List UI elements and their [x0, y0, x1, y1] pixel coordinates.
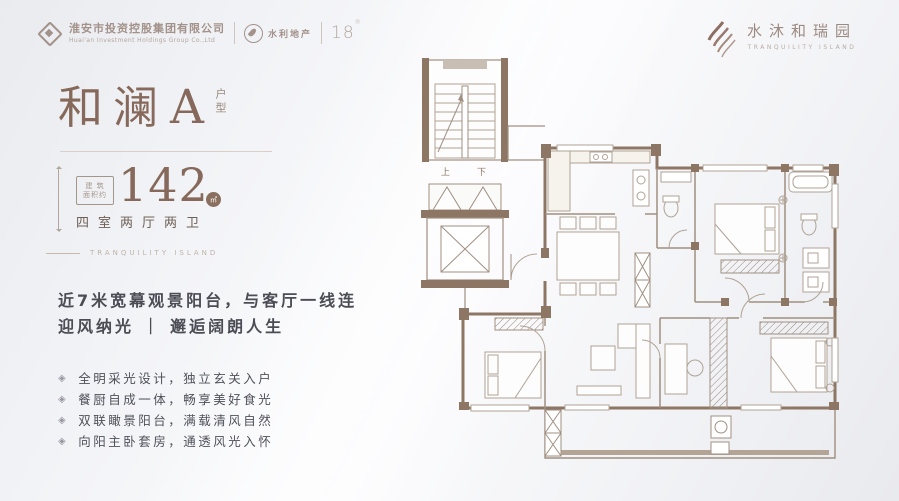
- brand-name: 水沐和瑞园: [747, 20, 857, 41]
- bathroom-1: [661, 172, 691, 248]
- study: [642, 340, 703, 394]
- balcony: [545, 405, 835, 458]
- dining-area: [557, 217, 619, 295]
- balcony-column: [545, 410, 561, 456]
- partner-logo: 水利地产: [244, 24, 312, 43]
- area-prefix-box: 建 筑 面积约: [76, 176, 114, 205]
- feature-item: ◈双联瞰景阳台，满载清风自然: [58, 410, 273, 431]
- anniversary-mark: 18®: [331, 23, 362, 43]
- master-bedroom: [741, 294, 834, 392]
- diamond-bullet-icon: ◈: [58, 389, 68, 410]
- partner-name: 水利地产: [268, 27, 312, 40]
- staircase: 上 下: [422, 58, 508, 178]
- kitchen: [548, 151, 650, 211]
- brand-name-en: TRANQUILITY ISLAND: [747, 44, 857, 51]
- diamond-bullet-icon: ◈: [58, 431, 68, 452]
- tagline-line-2: 迎风纳光 ｜ 邂逅阔朗人生: [58, 314, 357, 340]
- entry-door: [511, 254, 537, 280]
- header-divider: [234, 22, 235, 44]
- brand-wave-icon: [703, 20, 737, 60]
- header-logos: 淮安市投资控股集团有限公司 Huai'an Investment Holding…: [38, 22, 362, 44]
- bathroom-2: [789, 172, 832, 302]
- partner-logo-icon: [244, 24, 263, 43]
- unit-title: 和澜 A 户型: [58, 80, 228, 136]
- header-divider-2: [321, 22, 322, 44]
- brand-block: 水沐和瑞园 TRANQUILITY ISLAND: [703, 20, 857, 60]
- diamond-bullet-icon: ◈: [58, 410, 68, 431]
- tagline-line-1: 近7米宽幕观景阳台，与客厅一线连: [58, 288, 357, 314]
- area-unit-badge: ㎡: [206, 192, 221, 207]
- dimension-line: [58, 168, 59, 230]
- stair-down-label: 下: [477, 168, 486, 178]
- feature-item: ◈餐厨自成一体，畅享美好食光: [58, 389, 273, 410]
- unit-variant: A: [170, 80, 204, 136]
- tagline: 近7米宽幕观景阳台，与客厅一线连 迎风纳光 ｜ 邂逅阔朗人生: [58, 288, 357, 340]
- feature-item: ◈向阳主卧套房，通透风光入怀: [58, 431, 273, 452]
- caption-text: TRANQUILITY ISLAND: [90, 249, 218, 257]
- company-logo-icon: [38, 22, 60, 44]
- company-name: 淮安市投资控股集团有限公司: [69, 23, 225, 35]
- diamond-bullet-icon: ◈: [58, 368, 68, 389]
- area-value: 142: [118, 158, 209, 212]
- living-room: [577, 324, 650, 398]
- elevator: [421, 184, 509, 316]
- washer: [711, 416, 731, 454]
- structural-columns: [635, 253, 650, 307]
- lobby-corridor: [508, 126, 545, 160]
- feature-item: ◈全明采光设计，独立玄关入户: [58, 368, 273, 389]
- feature-list: ◈全明采光设计，独立玄关入户 ◈餐厨自成一体，畅享美好食光 ◈双联瞰景阳台，满载…: [58, 368, 273, 452]
- bedroom-bottom-left: [485, 326, 545, 398]
- caption-dash: [46, 253, 80, 254]
- room-configuration: 四室两厅两卫: [76, 212, 208, 231]
- unit-title-cn: 和澜: [58, 80, 168, 136]
- unit-type-label: 户型: [212, 88, 228, 116]
- floor-plan: 上 下: [405, 56, 875, 496]
- bedroom-top-right: [715, 196, 787, 302]
- title-underline: [60, 151, 272, 152]
- caption-row: TRANQUILITY ISLAND: [46, 249, 218, 257]
- stair-up-label: 上: [441, 167, 450, 178]
- company-name-en: Huai'an Investment Holdings Group Co.,Lt…: [69, 37, 225, 44]
